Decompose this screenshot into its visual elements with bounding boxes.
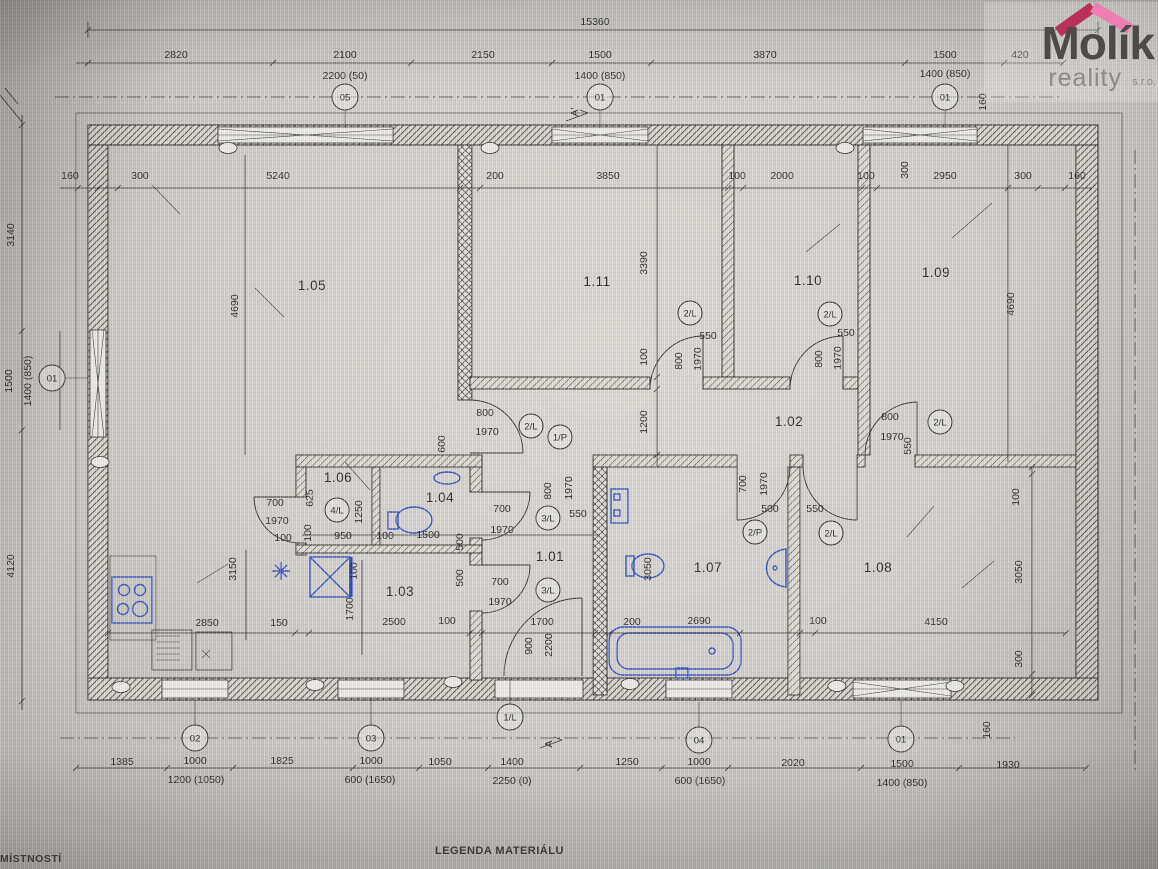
section-marker-label: A' bbox=[569, 107, 581, 116]
dim-label: 300 bbox=[899, 161, 911, 179]
position-marker-label: 01 bbox=[896, 735, 907, 746]
window bbox=[90, 330, 106, 437]
entrance-door bbox=[495, 598, 583, 698]
window bbox=[338, 680, 404, 698]
dim-label: 800 bbox=[813, 350, 825, 368]
dim-label: 550 bbox=[806, 503, 824, 515]
dim-label: 2850 bbox=[195, 617, 219, 629]
room-label: 1.05 bbox=[298, 278, 326, 293]
dim-label: 1000 bbox=[183, 755, 207, 767]
dim-label: 1970 bbox=[880, 431, 904, 443]
window bbox=[218, 127, 393, 143]
dim-label: 2000 bbox=[770, 170, 794, 182]
window bbox=[162, 680, 228, 698]
position-marker-label: 1/L bbox=[503, 713, 516, 724]
lintel-oval-marker bbox=[946, 681, 964, 692]
dim-label: 4690 bbox=[1005, 292, 1017, 316]
dim-label: 800 bbox=[476, 407, 494, 419]
dim-label: 15360 bbox=[580, 16, 609, 28]
dim-label: 700 bbox=[737, 475, 749, 493]
floorplan-photo: 153602820210021501500387015004202200 (50… bbox=[0, 0, 1158, 869]
dim-label: 800 bbox=[542, 482, 554, 500]
dim-label: 1970 bbox=[758, 472, 770, 496]
door-marker-label: 2/L bbox=[683, 309, 696, 320]
room-label: 1.03 bbox=[386, 584, 414, 599]
position-marker-label: 03 bbox=[366, 734, 377, 745]
dim-label: 500 bbox=[454, 569, 466, 587]
dim-label: 500 bbox=[761, 503, 779, 515]
door-marker-label: 3/L bbox=[541, 514, 554, 525]
door-marker-label: 2/L bbox=[823, 310, 836, 321]
lintel-oval-marker bbox=[828, 681, 846, 692]
dim-label: 1970 bbox=[692, 347, 704, 371]
dim-label: 1400 (850) bbox=[22, 356, 34, 407]
room-label: 1.11 bbox=[583, 274, 610, 289]
dim-label: 3850 bbox=[596, 170, 620, 182]
dim-label: 625 bbox=[304, 489, 316, 507]
dim-label: 300 bbox=[1013, 650, 1025, 668]
position-markers: 05010101020304011/L bbox=[39, 84, 958, 753]
room-label: 1.02 bbox=[775, 414, 803, 429]
room-label: 1.04 bbox=[426, 490, 454, 505]
room-label: 1.08 bbox=[864, 560, 892, 575]
dim-label: 160 bbox=[61, 170, 79, 182]
section-marker-label: A bbox=[543, 740, 555, 747]
door-marker-label: 4/L bbox=[330, 506, 343, 517]
dim-label: 1200 bbox=[638, 410, 650, 434]
dim-label: 1000 bbox=[359, 755, 383, 767]
dim-label: 1970 bbox=[475, 426, 499, 438]
dim-label: 100 bbox=[376, 530, 394, 542]
dim-label: 3140 bbox=[5, 223, 17, 247]
dim-label: 3150 bbox=[227, 557, 239, 581]
window bbox=[666, 680, 732, 698]
dim-label: 2150 bbox=[471, 49, 495, 61]
door-marker-label: 2/P bbox=[748, 528, 762, 539]
dim-label: 1400 (850) bbox=[877, 777, 928, 789]
interior-walls bbox=[296, 145, 1076, 695]
bathtub-icon bbox=[609, 627, 741, 678]
logo-suffix-text: s.r.o. bbox=[1132, 76, 1156, 88]
dim-label: 1500 bbox=[890, 758, 914, 770]
room-label: 1.06 bbox=[324, 470, 352, 485]
dim-label: 1250 bbox=[615, 756, 639, 768]
logo-line2-text: reality bbox=[1048, 64, 1122, 93]
dim-label: 3390 bbox=[638, 251, 650, 275]
position-marker-label: 02 bbox=[190, 734, 201, 745]
dim-label: 1400 bbox=[500, 756, 524, 768]
dim-label: 1970 bbox=[265, 515, 289, 527]
dim-label: 1500 bbox=[588, 49, 612, 61]
position-marker-label: 01 bbox=[47, 374, 58, 385]
lintel-oval-marker bbox=[306, 680, 324, 691]
dim-label: 600 (1650) bbox=[675, 775, 726, 787]
kitchen-counter bbox=[110, 556, 156, 640]
window bbox=[853, 680, 951, 698]
dim-label: 3050 bbox=[1013, 560, 1025, 584]
dim-label: 1970 bbox=[490, 524, 514, 536]
dim-label: 100 bbox=[728, 170, 746, 182]
dim-label: 1500 bbox=[933, 49, 957, 61]
dim-label: 150 bbox=[270, 617, 288, 629]
dim-label: 300 bbox=[131, 170, 149, 182]
lintel-oval-marker bbox=[836, 143, 854, 154]
dim-label: 1250 bbox=[353, 500, 365, 524]
dim-label: 3870 bbox=[753, 49, 777, 61]
dim-label: 1970 bbox=[832, 346, 844, 370]
dim-label: 550 bbox=[837, 327, 855, 339]
dim-label: 1970 bbox=[488, 596, 512, 608]
dim-label: 100 bbox=[638, 348, 650, 366]
dim-label: 100 bbox=[274, 532, 292, 544]
logo-brand-text: Molík bbox=[1041, 20, 1154, 66]
dim-label: 1970 bbox=[563, 476, 575, 500]
position-marker-label: 01 bbox=[940, 93, 951, 104]
legend-title: LEGENDA MATERIÁLU bbox=[435, 845, 564, 857]
dim-label: 700 bbox=[266, 497, 284, 509]
dim-label: 300 bbox=[1014, 170, 1032, 182]
room-label: 1.07 bbox=[694, 560, 722, 575]
dim-label: 600 bbox=[436, 435, 448, 453]
dim-label: 1200 (1050) bbox=[168, 774, 225, 786]
dim-label: 1825 bbox=[270, 755, 294, 767]
lintel-oval-marker bbox=[91, 457, 109, 468]
lintel-oval-marker bbox=[621, 679, 639, 690]
dim-label: 1500 bbox=[3, 369, 15, 393]
dim-label: 800 bbox=[673, 352, 685, 370]
room-label: 1.01 bbox=[536, 549, 564, 564]
room-label: 1.09 bbox=[922, 265, 950, 280]
dim-label: 600 (1650) bbox=[345, 774, 396, 786]
kitchen-unit bbox=[196, 632, 232, 670]
dim-label: 100 bbox=[1010, 488, 1022, 506]
dim-label: 4120 bbox=[5, 554, 17, 578]
dim-label: 2200 bbox=[543, 633, 555, 657]
dim-label: 900 bbox=[523, 637, 535, 655]
position-marker-label: 04 bbox=[694, 736, 705, 747]
room-label: 1.10 bbox=[794, 273, 822, 288]
door-marker-label: 1/P bbox=[553, 433, 567, 444]
dim-label: 2950 bbox=[933, 170, 957, 182]
dim-label: 3050 bbox=[642, 557, 654, 581]
dim-label: 200 bbox=[623, 616, 641, 628]
lintel-oval-marker bbox=[481, 143, 499, 154]
door-marker-label: 2/L bbox=[824, 529, 837, 540]
sink-icon bbox=[434, 472, 460, 484]
dim-label: 200 bbox=[486, 170, 504, 182]
dim-label: 1000 bbox=[687, 756, 711, 768]
position-marker-label: 01 bbox=[595, 93, 606, 104]
footer-mistnosti-label: MÍSTNOSTÍ bbox=[0, 853, 62, 865]
door-marker-label: 2/L bbox=[933, 418, 946, 429]
dim-label: 160 bbox=[1068, 170, 1086, 182]
dim-label: 2500 bbox=[382, 616, 406, 628]
window bbox=[552, 127, 648, 143]
dim-label: 1400 (850) bbox=[575, 70, 626, 82]
dim-label: 500 bbox=[454, 533, 466, 551]
dim-label: 2100 bbox=[333, 49, 357, 61]
washer-icon bbox=[611, 489, 628, 523]
dim-label: 550 bbox=[902, 437, 914, 455]
dim-label: 2820 bbox=[164, 49, 188, 61]
dim-label: 2250 (0) bbox=[492, 775, 531, 787]
dim-label: 4690 bbox=[229, 294, 241, 318]
lintel-oval-marker bbox=[219, 143, 237, 154]
dim-label: 1500 bbox=[416, 529, 440, 541]
dim-label: 1050 bbox=[428, 756, 452, 768]
floorplan-drawing: 153602820210021501500387015004202200 (50… bbox=[0, 0, 1158, 869]
dim-label: 1700 bbox=[344, 597, 356, 621]
fridge-icon bbox=[152, 630, 192, 670]
brand-logo: Molík reality s.r.o. bbox=[984, 2, 1158, 102]
dim-label: 1385 bbox=[110, 756, 134, 768]
dim-label: 950 bbox=[334, 530, 352, 542]
dim-label: 100 bbox=[438, 615, 456, 627]
dim-label: 100 bbox=[857, 170, 875, 182]
sink-icon bbox=[767, 549, 787, 587]
dim-label: 700 bbox=[493, 503, 511, 515]
dim-label: 2690 bbox=[687, 615, 711, 627]
dim-label: 1700 bbox=[530, 616, 554, 628]
door-marker-label: 2/L bbox=[524, 422, 537, 433]
dim-label: 800 bbox=[881, 411, 899, 423]
dim-label: 550 bbox=[569, 508, 587, 520]
dim-label: 2200 (50) bbox=[323, 70, 368, 82]
dim-label: 5240 bbox=[266, 170, 290, 182]
lintel-oval-marker bbox=[112, 682, 130, 693]
washer-icon bbox=[310, 557, 351, 597]
windows bbox=[90, 127, 977, 698]
dim-label: 1400 (850) bbox=[920, 68, 971, 80]
dim-label: 700 bbox=[491, 576, 509, 588]
dim-label: 550 bbox=[699, 330, 717, 342]
position-marker-label: 05 bbox=[340, 93, 351, 104]
boiler-star-icon bbox=[272, 562, 290, 580]
stove-icon bbox=[112, 577, 152, 623]
dim-label: 100 bbox=[348, 562, 360, 580]
dim-label: 2020 bbox=[781, 757, 805, 769]
dim-label: 1930 bbox=[996, 759, 1020, 771]
dim-label: 4150 bbox=[924, 616, 948, 628]
dim-label: 160 bbox=[981, 721, 993, 739]
door-marker-label: 3/L bbox=[541, 586, 554, 597]
lintel-oval-marker bbox=[444, 677, 462, 688]
dim-label: 100 bbox=[302, 524, 314, 542]
window bbox=[863, 127, 977, 143]
dim-label: 100 bbox=[809, 615, 827, 627]
